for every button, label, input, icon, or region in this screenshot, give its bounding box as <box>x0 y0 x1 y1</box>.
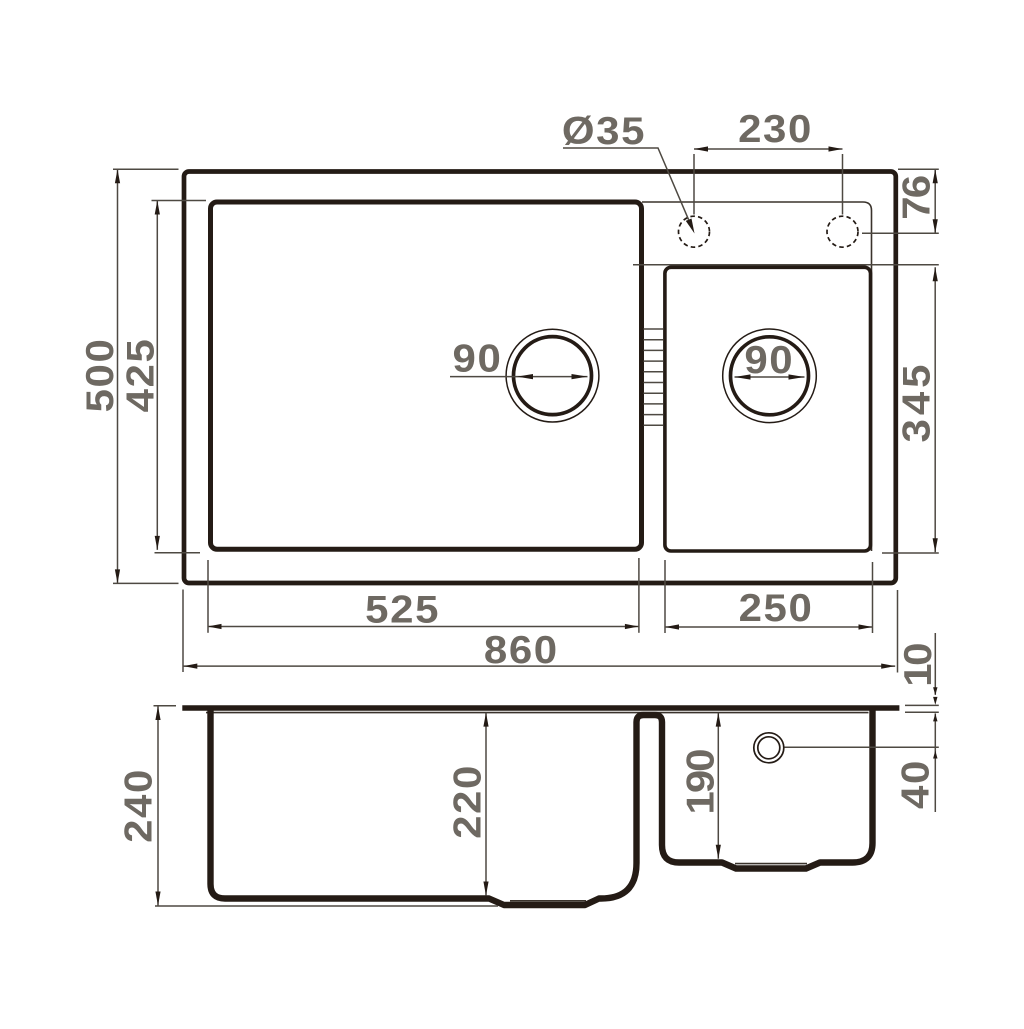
svg-text:230: 230 <box>738 107 813 151</box>
svg-text:250: 250 <box>739 585 814 629</box>
svg-text:345: 345 <box>894 360 938 442</box>
svg-text:425: 425 <box>118 338 162 413</box>
svg-text:90: 90 <box>453 336 503 380</box>
svg-text:90: 90 <box>744 338 794 382</box>
svg-text:Ø35: Ø35 <box>562 108 646 152</box>
svg-text:240: 240 <box>116 768 160 843</box>
svg-text:500: 500 <box>78 338 122 413</box>
svg-text:76: 76 <box>894 176 938 219</box>
svg-text:40: 40 <box>893 759 937 809</box>
svg-text:860: 860 <box>484 628 559 672</box>
svg-text:220: 220 <box>445 764 489 839</box>
svg-text:10: 10 <box>896 644 940 687</box>
svg-text:525: 525 <box>365 587 440 631</box>
svg-text:190: 190 <box>678 750 722 815</box>
